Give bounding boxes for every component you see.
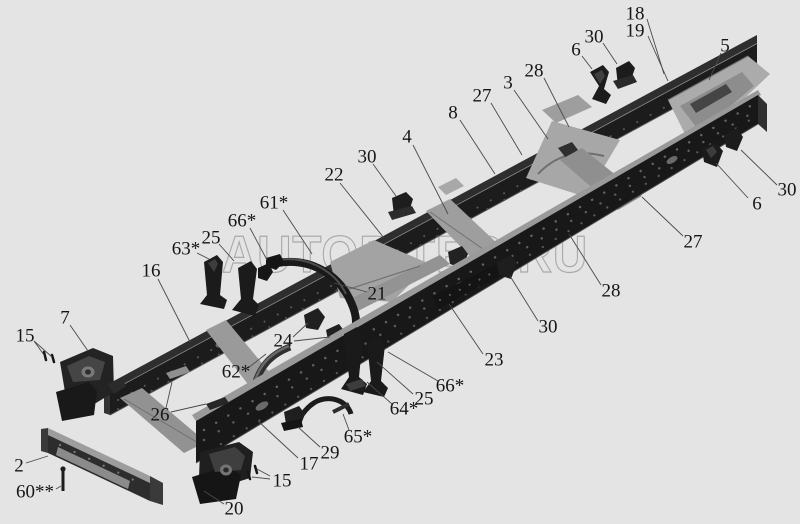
part-label-66-left: 66* [228,211,257,232]
part-label-30-top: 30 [585,27,604,48]
part-label-3: 3 [503,73,513,94]
part-label-62: 62* [222,362,251,383]
part-label-30-mid: 30 [539,317,558,338]
part-label-15-left: 15 [16,326,35,347]
part-label-26: 26 [151,405,170,426]
part-label-2: 2 [14,456,24,477]
part-label-63: 63* [172,239,201,260]
part-label-23: 23 [485,350,504,371]
part-label-5: 5 [720,36,730,57]
part-label-25-left: 25 [202,228,221,249]
part-label-21: 21 [368,284,387,305]
part-label-4: 4 [402,127,412,148]
chassis-diagram-canvas: AUTOPITER.RU [0,0,800,524]
part-label-66-right: 66* [436,376,465,397]
part-label-15-bottom: 15 [273,471,292,492]
part-label-64: 64* [390,399,419,420]
part-label-29: 29 [321,443,340,464]
part-label-30-left: 30 [358,147,377,168]
part-label-19: 19 [626,21,645,42]
diagram-stage: AUTOPITER.RU [0,0,800,524]
part-label-28-top: 28 [525,61,544,82]
part-label-30-right: 30 [778,180,797,201]
part-label-8: 8 [448,103,458,124]
part-label-6-top: 6 [571,40,581,61]
part-label-22: 22 [325,165,344,186]
part-label-24: 24 [274,331,294,352]
part-label-27-right: 27 [684,232,703,253]
part-label-20: 20 [225,499,244,520]
part-label-27-top: 27 [473,86,492,107]
part-label-28-bottom: 28 [602,281,621,302]
part-label-61: 61* [260,193,289,214]
part-label-7: 7 [60,308,70,329]
part-label-16: 16 [142,261,161,282]
part-label-60: 60** [16,482,54,503]
part-label-65: 65* [344,427,373,448]
part-label-6-right: 6 [752,194,762,215]
part-label-17: 17 [300,454,319,475]
